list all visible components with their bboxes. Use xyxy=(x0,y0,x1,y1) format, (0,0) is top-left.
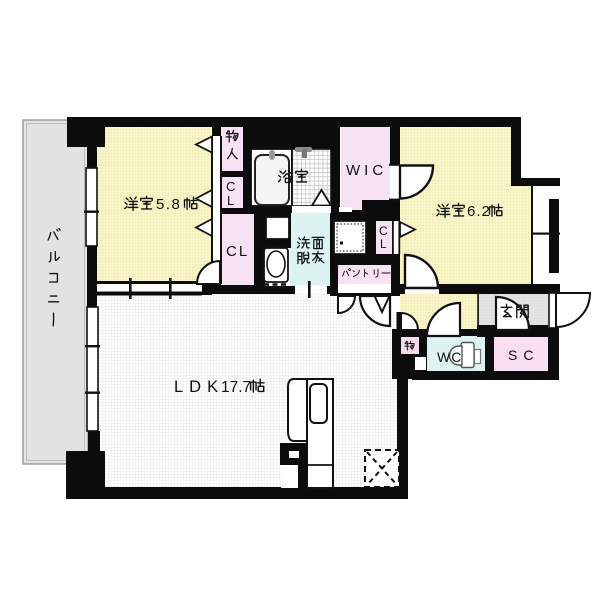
svg-text:LDK: LDK xyxy=(174,378,224,396)
svg-text:CL: CL xyxy=(226,243,249,260)
svg-text:17.7: 17.7 xyxy=(221,379,251,396)
svg-text:WC: WC xyxy=(437,349,462,365)
svg-text:5.8: 5.8 xyxy=(156,196,181,213)
svg-text:L: L xyxy=(227,193,234,208)
svg-text:C: C xyxy=(226,179,235,194)
svg-text:C: C xyxy=(379,224,388,238)
svg-text:L: L xyxy=(380,237,387,251)
svg-text:6.2: 6.2 xyxy=(467,203,491,220)
svg-text:WIC: WIC xyxy=(346,162,387,179)
svg-text:SC: SC xyxy=(508,347,539,363)
